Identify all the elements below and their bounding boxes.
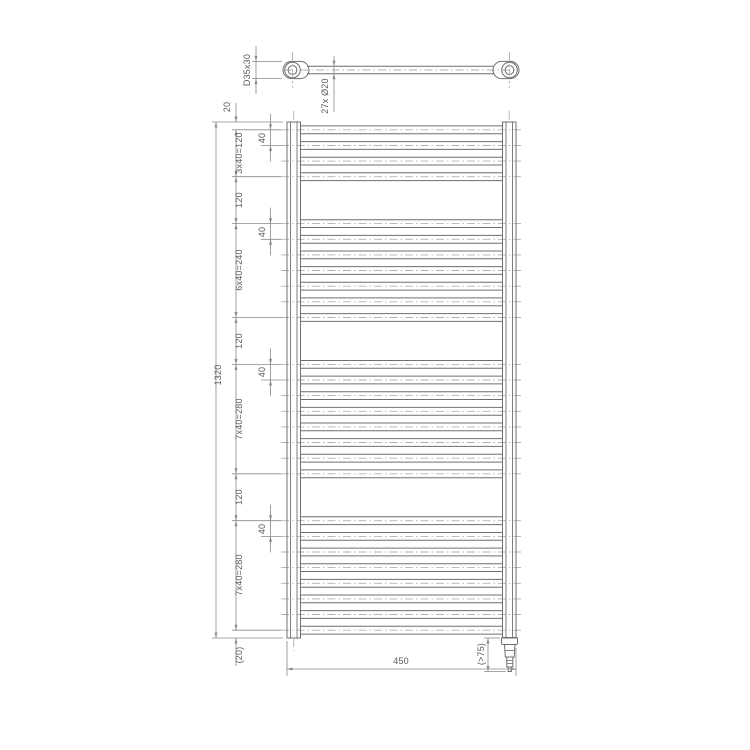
- tube-row: [281, 157, 521, 165]
- tube-row: [281, 407, 521, 415]
- tube-row: [281, 267, 521, 275]
- dim-pitch-4: 40: [257, 524, 267, 534]
- tube-row: [281, 298, 521, 306]
- tube-row: [281, 470, 521, 478]
- tube-row: [281, 251, 521, 259]
- heating-element: [502, 638, 518, 672]
- dim-bracket-size: D35x30: [242, 54, 252, 86]
- tube-row: [281, 314, 521, 322]
- dim-gap1: 120: [234, 192, 244, 208]
- top-view: [283, 52, 519, 88]
- tube-row: [281, 579, 521, 587]
- tube-row: [281, 126, 521, 134]
- dim-overall-width: 450: [393, 656, 409, 666]
- tube-row: [281, 220, 521, 228]
- dim-overall-height: 1320: [213, 365, 223, 386]
- dim-group3: 7x40=280: [234, 398, 244, 439]
- dim-gap2: 120: [234, 333, 244, 349]
- dim-pitch-1: 40: [257, 133, 267, 143]
- tube-row: [281, 235, 521, 243]
- tube-row: [281, 454, 521, 462]
- dim-pitch-2: 40: [257, 227, 267, 237]
- tube-row: [281, 282, 521, 290]
- tube-row: [281, 564, 521, 572]
- dim-tube-count: 27x Ø20: [320, 78, 330, 113]
- tube-row: [281, 423, 521, 431]
- tube-row: [281, 548, 521, 556]
- dim-bottom-offset: (20): [234, 647, 244, 664]
- tube-row: [281, 517, 521, 525]
- dim-group1: 3x40=120: [234, 132, 244, 173]
- technical-drawing: D35x30 27x Ø20 20 3x40=120 120 6x40=240 …: [0, 0, 750, 750]
- tube-rows: [281, 126, 521, 634]
- dim-gap3: 120: [234, 489, 244, 505]
- dim-group4: 7x40=280: [234, 554, 244, 595]
- dim-group2: 6x40=240: [234, 249, 244, 290]
- tube-row: [281, 376, 521, 384]
- tube-row: [281, 361, 521, 369]
- dim-pitch-3: 40: [257, 367, 267, 377]
- tube-row: [281, 595, 521, 603]
- dim-element-clearance: (>75): [476, 643, 486, 665]
- tube-row: [281, 142, 521, 150]
- tube-row: [281, 611, 521, 619]
- tube-row: [281, 533, 521, 541]
- drawing-page: D35x30 27x Ø20 20 3x40=120 120 6x40=240 …: [0, 0, 750, 750]
- tube-row: [281, 173, 521, 181]
- tube-row: [281, 626, 521, 634]
- dim-top-offset: 20: [222, 102, 232, 112]
- collectors: [287, 111, 516, 651]
- tube-row: [281, 392, 521, 400]
- tube-row: [281, 439, 521, 447]
